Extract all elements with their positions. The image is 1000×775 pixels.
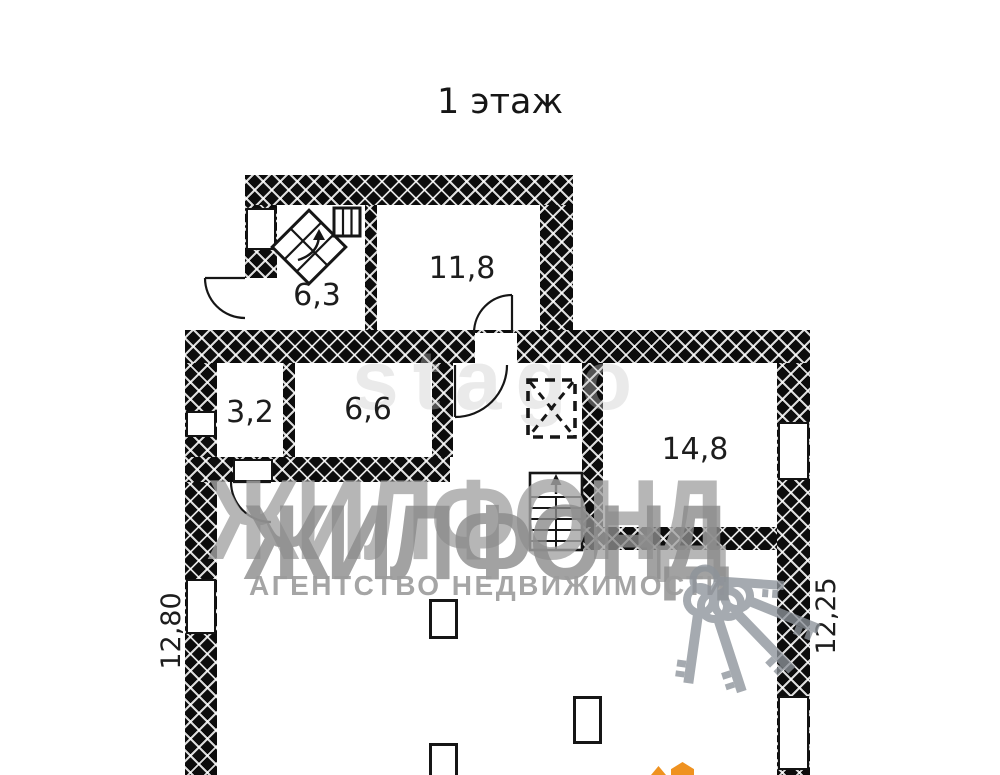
- stairs-up-icon: [272, 208, 360, 284]
- left-window-upper: [186, 411, 216, 437]
- room-118-door-arc-icon: [474, 295, 512, 333]
- dimension-left: 12,80: [157, 586, 187, 676]
- room-label-66: 6,6: [338, 395, 398, 425]
- orange-logo-fragment: [651, 766, 666, 775]
- left-window-lower: [186, 579, 216, 634]
- room-label-63: 6,3: [287, 281, 347, 311]
- orange-logo-fragment: [671, 762, 694, 775]
- dimension-right: 12,25: [812, 571, 842, 661]
- entrance-door-arc-icon: [205, 278, 245, 318]
- column: [573, 696, 602, 744]
- entry-window: [246, 208, 276, 250]
- column: [429, 599, 458, 639]
- room-label-118: 11,8: [422, 254, 502, 284]
- room-label-32: 3,2: [220, 398, 280, 428]
- right-window-lower: [778, 696, 809, 770]
- entrance-doorway: [245, 278, 277, 330]
- column: [429, 743, 458, 775]
- wall-divider-32-66: [283, 363, 295, 457]
- wall-top-block-top: [245, 175, 573, 205]
- room-label-148: 14,8: [655, 435, 735, 465]
- floor-title: 1 этаж: [0, 82, 1000, 122]
- floor-plan: 1 этаж 6,3 11,8 3,2 6,6 14,8 12,80 12,25: [0, 0, 1000, 775]
- right-window-upper: [778, 422, 809, 480]
- wall-top-block-right: [540, 205, 573, 330]
- wall-divider-63-118: [365, 205, 377, 330]
- agency-watermark: АГЕНТСТВО НЕДВИЖИМОСТИ: [249, 572, 728, 600]
